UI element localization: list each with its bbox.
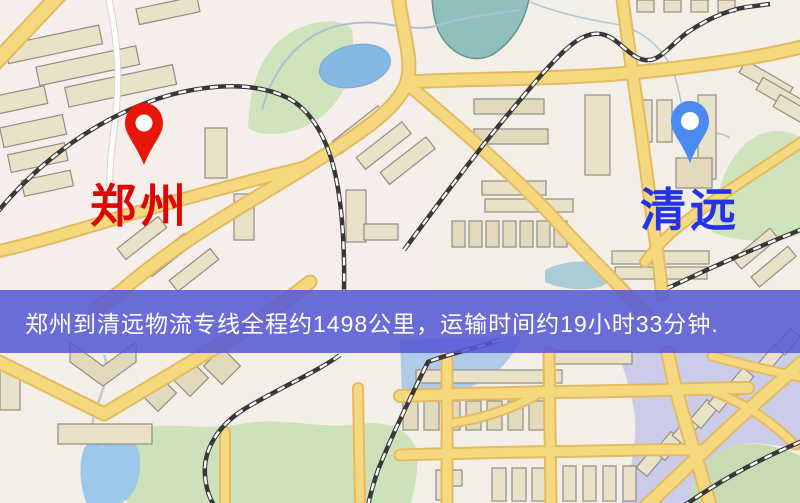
destination-city-label: 清远 — [640, 174, 740, 240]
destination-pin[interactable] — [668, 99, 712, 165]
route-banner-text: 郑州到清远物流专线全程约1498公里，运输时间约19小时33分钟. — [25, 305, 719, 339]
map-tiles — [0, 0, 800, 503]
blue-map-pin-icon — [668, 99, 712, 165]
route-banner: 郑州到清远物流专线全程约1498公里，运输时间约19小时33分钟. — [0, 290, 800, 353]
red-map-pin-icon — [122, 101, 166, 167]
origin-pin[interactable] — [122, 101, 166, 167]
origin-city-label: 郑州 — [90, 170, 190, 236]
map[interactable]: 郑州 清远 郑州到清远物流专线全程约1498公里，运输时间约19小时33分钟. — [0, 0, 800, 503]
